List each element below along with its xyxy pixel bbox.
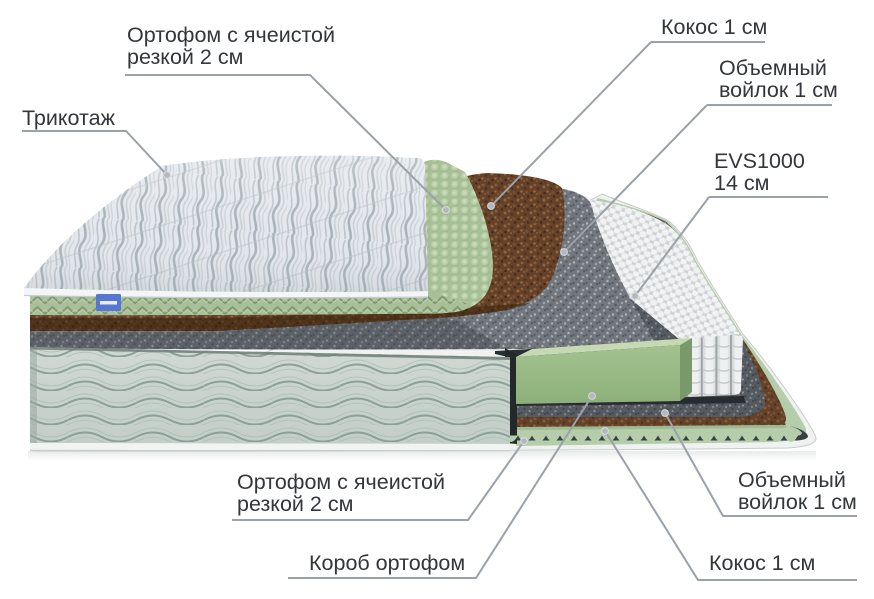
svg-text:Кокос 1 см: Кокос 1 см	[709, 551, 815, 575]
svg-text:14 см: 14 см	[714, 171, 769, 195]
svg-text:EVS1000: EVS1000	[714, 149, 805, 173]
svg-text:резкой 2 см: резкой 2 см	[237, 492, 353, 516]
svg-text:Объемный: Объемный	[719, 56, 827, 80]
svg-text:Ортофом с ячеистой: Ортофом с ячеистой	[237, 470, 445, 494]
svg-text:Ортофом с ячеистой: Ортофом с ячеистой	[127, 23, 335, 47]
svg-text:Трикотаж: Трикотаж	[22, 106, 116, 130]
svg-text:резкой 2 см: резкой 2 см	[127, 45, 243, 69]
svg-text:Короб ортофом: Короб ортофом	[309, 551, 465, 575]
svg-text:Объемный: Объемный	[738, 468, 846, 492]
svg-text:Кокос 1 см: Кокос 1 см	[661, 15, 767, 39]
svg-text:войлок 1 см: войлок 1 см	[738, 490, 857, 514]
svg-text:войлок 1 см: войлок 1 см	[719, 78, 838, 102]
